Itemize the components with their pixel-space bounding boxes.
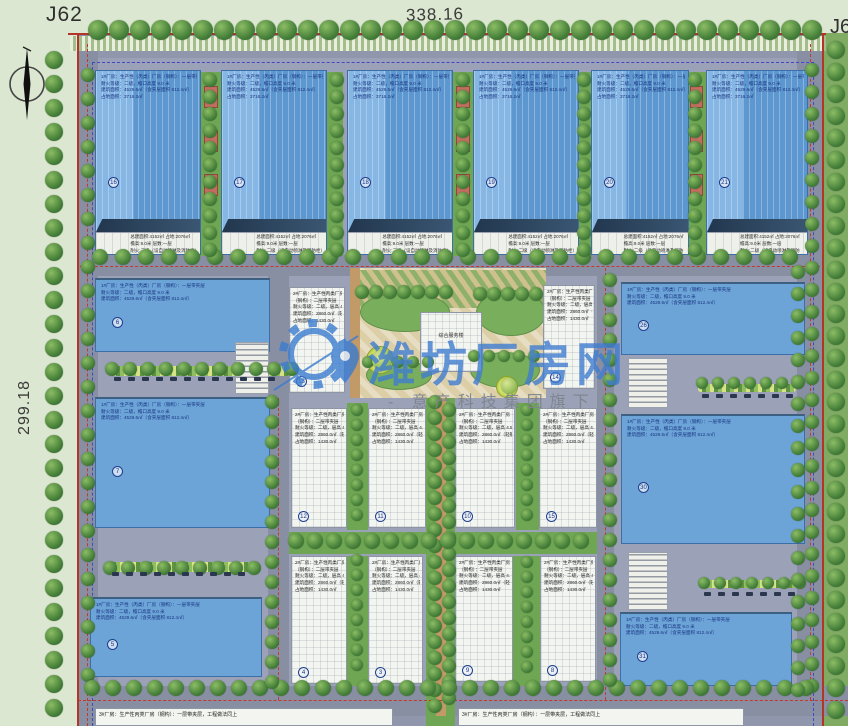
annotation-line: 占地面积：3716.2㎡ bbox=[712, 94, 804, 101]
tree bbox=[203, 124, 217, 138]
building-number-badge: 15 bbox=[546, 511, 557, 522]
tree bbox=[357, 680, 373, 696]
tree bbox=[696, 377, 708, 389]
tree bbox=[805, 415, 819, 429]
tree bbox=[88, 20, 108, 40]
tree bbox=[428, 475, 442, 489]
tree bbox=[421, 533, 437, 549]
tree bbox=[265, 555, 279, 569]
tree bbox=[428, 411, 442, 425]
building-31: 1#厂房：生产性（丙类）厂房（钢构）：一层带夹层耐火等级：二级，檐口高度 9.0… bbox=[620, 612, 792, 686]
tree bbox=[713, 249, 729, 265]
tree bbox=[172, 20, 192, 40]
tree bbox=[265, 475, 279, 489]
tree bbox=[592, 20, 612, 40]
parked-car bbox=[744, 394, 751, 398]
tree bbox=[442, 499, 456, 513]
tree bbox=[392, 356, 404, 368]
tree bbox=[521, 494, 533, 506]
annotation-line: 1#厂房：生产性（丙类）厂房（钢构）：一层带夹层 bbox=[597, 74, 685, 81]
building-annotation: 2#厂房：生产性丙类厂房（砼框架）（钢构）：二层带夹层耐火等级：二级，层高 4.… bbox=[372, 412, 423, 445]
tree bbox=[791, 551, 805, 565]
building-number-badge: 9 bbox=[462, 665, 473, 676]
building-7: 1#厂房：生产性（丙类）厂房（钢构）：一层带夹层耐火等级：二级，檐口高度 9.0… bbox=[95, 397, 270, 528]
tree bbox=[776, 377, 788, 389]
tree bbox=[528, 350, 540, 362]
annotation-line: 占地面积：1430.0㎡ bbox=[459, 587, 510, 594]
tree bbox=[351, 644, 363, 656]
tree bbox=[428, 491, 442, 505]
parked-car bbox=[746, 592, 753, 596]
tree bbox=[81, 380, 95, 394]
service-building-label: 综合服务楼 bbox=[420, 332, 482, 339]
tree bbox=[81, 404, 95, 418]
building-number-badge: 10 bbox=[462, 511, 473, 522]
parked-car bbox=[772, 394, 779, 398]
tree bbox=[651, 680, 667, 696]
tree bbox=[827, 107, 845, 125]
tree bbox=[529, 287, 543, 301]
tree bbox=[521, 586, 533, 598]
parked-car bbox=[210, 572, 217, 576]
annotation-line: 建筑面积：4529.6㎡（含夹层面积 812.4㎡） bbox=[626, 630, 788, 637]
tree bbox=[298, 20, 318, 40]
tree bbox=[791, 287, 805, 301]
parked-car bbox=[226, 377, 233, 381]
annotation-line: 建筑面积：4529.6㎡（含夹层面积 812.4㎡） bbox=[101, 296, 266, 303]
tree bbox=[437, 249, 453, 265]
tree bbox=[827, 679, 845, 697]
tree bbox=[791, 353, 805, 367]
tree bbox=[81, 284, 95, 298]
annotation-line: 2#厂房：生产性丙类厂房（砼框架） bbox=[372, 560, 420, 567]
boundary-red-line bbox=[822, 33, 824, 726]
tree bbox=[487, 20, 507, 40]
tree bbox=[277, 20, 297, 40]
tree bbox=[655, 20, 675, 40]
annotation-line: 2#厂房：生产性丙类厂房（砼框架） bbox=[543, 412, 594, 419]
tree bbox=[603, 353, 617, 367]
top-dimension-label: 338.16 bbox=[406, 4, 465, 26]
tree bbox=[109, 20, 129, 40]
annotation-line: 1#厂房：生产性（丙类）厂房（钢构）：一层带夹层 bbox=[353, 74, 449, 81]
tree bbox=[603, 653, 617, 667]
tree bbox=[805, 591, 819, 605]
building-annotation: 1#厂房：生产性（丙类）厂房（钢构）：一层带夹层耐火等级：二级，檐口高度 9.0… bbox=[626, 617, 788, 637]
tree bbox=[351, 569, 363, 581]
tree bbox=[456, 107, 470, 121]
annotation-line: 建筑面积：4529.6㎡（含夹层面积 812.4㎡） bbox=[627, 300, 801, 307]
tree bbox=[521, 479, 533, 491]
tree bbox=[603, 673, 617, 687]
tree bbox=[577, 175, 591, 189]
building-number-badge: 3 bbox=[375, 667, 386, 678]
tree bbox=[369, 285, 383, 299]
parked-car bbox=[786, 394, 793, 398]
parked-car bbox=[140, 572, 147, 576]
tree bbox=[603, 433, 617, 447]
tree bbox=[791, 661, 805, 675]
tree bbox=[760, 20, 780, 40]
building-annotation: 1#厂房：生产性（丙类）厂房（钢构）：一层带夹层耐火等级：二级，檐口高度 9.0… bbox=[597, 74, 685, 101]
annotation-line: 2#厂房：生产性丙类厂房（砼框架） bbox=[295, 412, 344, 419]
tree bbox=[351, 599, 363, 611]
tree bbox=[420, 680, 436, 696]
annotation-line: 2#厂房：生产性丙类厂房（砼框架） bbox=[547, 289, 592, 296]
building-annotation: 2#厂房：生产性丙类厂房（砼框架）（钢构）：二层带夹层耐火等级：二级，层高 4.… bbox=[543, 412, 594, 445]
tree bbox=[330, 73, 344, 87]
tree bbox=[456, 141, 470, 155]
site-plan-image: 1#厂房：生产性（丙类）厂房（钢构）：一层带夹层耐火等级：二级，檐口高度 9.0… bbox=[0, 0, 848, 726]
tree bbox=[483, 249, 499, 265]
tree bbox=[351, 554, 363, 566]
tree bbox=[456, 192, 470, 206]
annotation-line: 建筑面积：2860.0㎡（轻钢屋面彩钢板） bbox=[372, 580, 420, 587]
building-3: 2#厂房：生产性丙类厂房（砼框架）（钢构）：二层带夹层耐火等级：二级，层高 4.… bbox=[368, 556, 423, 684]
annotation-line: 1#厂房：生产性（丙类）厂房（钢构）：一层带夹层 bbox=[101, 402, 266, 409]
tree bbox=[577, 209, 591, 223]
corner-label-j62: J62 bbox=[46, 3, 83, 27]
tree bbox=[603, 593, 617, 607]
tree bbox=[326, 533, 342, 549]
annotation-line: 建筑面积：4529.6㎡（含夹层面积 812.4㎡） bbox=[712, 87, 804, 94]
tree bbox=[521, 419, 533, 431]
tree bbox=[736, 249, 752, 265]
building-annotation: 2#厂房：生产性丙类厂房（砼框架）（钢构）：二层带夹层耐火等级：二级，层高 4.… bbox=[372, 560, 420, 593]
building-number-badge: 11 bbox=[375, 511, 386, 522]
tree bbox=[516, 533, 532, 549]
tree bbox=[621, 249, 637, 265]
tree bbox=[782, 249, 798, 265]
tree bbox=[746, 577, 758, 589]
tree bbox=[81, 500, 95, 514]
parked-car bbox=[128, 377, 135, 381]
tree bbox=[45, 555, 63, 573]
annotation-line: 建筑面积：2860.0㎡（轻钢屋面彩钢板） bbox=[295, 580, 344, 587]
tree bbox=[521, 646, 533, 658]
tree bbox=[735, 680, 751, 696]
building-16: 1#厂房：生产性（丙类）厂房（钢构）：一层带夹层耐火等级：二级，檐口高度 9.0… bbox=[95, 70, 201, 255]
tree bbox=[203, 73, 217, 87]
building-number-badge: 18 bbox=[360, 177, 371, 188]
tree bbox=[45, 243, 63, 261]
tree bbox=[231, 680, 247, 696]
tree bbox=[428, 427, 442, 441]
band-line: 总建面积:4152㎡ 占地:2076㎡ bbox=[624, 234, 686, 241]
tree bbox=[805, 107, 819, 121]
tree bbox=[521, 556, 533, 568]
building-annotation: 2#厂房：生产性丙类厂房（砼框架）（钢构）：二层带夹层耐火等级：二级，层高 4.… bbox=[544, 560, 593, 593]
tree bbox=[827, 195, 845, 213]
tree bbox=[428, 571, 442, 585]
tree bbox=[791, 309, 805, 323]
tree bbox=[827, 173, 845, 191]
annotation-line: 建筑面积：2860.0㎡（轻钢屋面彩钢板） bbox=[544, 580, 593, 587]
tree bbox=[428, 619, 442, 633]
tree bbox=[577, 243, 591, 257]
tree bbox=[521, 616, 533, 628]
building-annotation: 1#厂房：生产性（丙类）厂房（钢构）：一层带夹层耐火等级：二级，檐口高度 9.0… bbox=[101, 402, 266, 422]
tree bbox=[603, 293, 617, 307]
tree bbox=[827, 261, 845, 279]
tree bbox=[203, 141, 217, 155]
tree bbox=[506, 249, 522, 265]
tree bbox=[598, 249, 614, 265]
tree bbox=[603, 313, 617, 327]
building-number-badge: 17 bbox=[234, 177, 245, 188]
tree bbox=[130, 20, 150, 40]
band-line: 总建面积:4152㎡ 占地:2076㎡ bbox=[130, 234, 198, 241]
tree bbox=[265, 535, 279, 549]
band-line: 檐高:9.0米 层数:一层 bbox=[624, 241, 686, 248]
tree bbox=[688, 175, 702, 189]
tree bbox=[428, 667, 442, 681]
tree bbox=[805, 239, 819, 253]
annotation-line: 占地面积：1430.0㎡ bbox=[547, 316, 592, 323]
tree bbox=[550, 20, 570, 40]
tree bbox=[330, 158, 344, 172]
tree bbox=[307, 533, 323, 549]
parked-car bbox=[198, 377, 205, 381]
building-annotation: 1#厂房：生产性（丙类）厂房（钢构）：一层带夹层耐火等级：二级，檐口高度 9.0… bbox=[627, 419, 801, 439]
tree bbox=[203, 226, 217, 240]
annotation-line: 建筑面积：4529.6㎡（含夹层面积 812.4㎡） bbox=[627, 432, 801, 439]
tree bbox=[123, 362, 137, 376]
tree bbox=[697, 20, 717, 40]
tree bbox=[456, 90, 470, 104]
annotation-line: 占地面积：1430.0㎡ bbox=[372, 587, 420, 594]
tree bbox=[330, 226, 344, 240]
tree bbox=[45, 315, 63, 333]
tree bbox=[81, 620, 95, 634]
tree bbox=[805, 547, 819, 561]
parked-car bbox=[704, 592, 711, 596]
boundary-red-line bbox=[77, 33, 79, 726]
tree bbox=[603, 573, 617, 587]
tree bbox=[265, 595, 279, 609]
tree bbox=[805, 393, 819, 407]
tree bbox=[791, 595, 805, 609]
annotation-line: 耐火等级：二级，层高 4.5 米 bbox=[295, 425, 344, 432]
parked-car bbox=[156, 377, 163, 381]
tree bbox=[351, 404, 363, 416]
tree bbox=[422, 356, 434, 368]
tree bbox=[407, 356, 419, 368]
tree bbox=[456, 175, 470, 189]
building-number-badge: 26 bbox=[638, 320, 649, 331]
tree bbox=[462, 680, 478, 696]
annotation-line: 建筑面积：2860.0㎡（轻钢屋面彩钢板） bbox=[293, 311, 342, 318]
tree bbox=[630, 680, 646, 696]
tree bbox=[425, 285, 439, 299]
tree bbox=[351, 629, 363, 641]
tree bbox=[603, 513, 617, 527]
tree bbox=[92, 249, 108, 265]
annotation-line: 耐火等级：二级，层高 4.5 米 bbox=[459, 425, 512, 432]
tree bbox=[805, 173, 819, 187]
tree bbox=[552, 249, 568, 265]
annotation-line: 占地面积：1430.0㎡ bbox=[295, 439, 344, 446]
tree bbox=[791, 639, 805, 653]
tree bbox=[778, 577, 790, 589]
parked-car bbox=[114, 377, 121, 381]
tree bbox=[378, 680, 394, 696]
tree bbox=[81, 428, 95, 442]
tree bbox=[456, 209, 470, 223]
tree bbox=[688, 90, 702, 104]
building-10: 2#厂房：生产性丙类厂房（砼框架）（钢构）：二层带夹层耐火等级：二级，层高 4.… bbox=[455, 408, 515, 528]
tree bbox=[714, 577, 726, 589]
tree bbox=[712, 377, 724, 389]
tree bbox=[231, 362, 245, 376]
parked-car bbox=[168, 572, 175, 576]
tree bbox=[265, 415, 279, 429]
building-8: 2#厂房：生产性丙类厂房（砼框架）（钢构）：二层带夹层耐火等级：二级，层高 4.… bbox=[540, 556, 596, 682]
building-tan bbox=[670, 356, 686, 404]
tree bbox=[81, 572, 95, 586]
building-annotation: 1#厂房：生产性（丙类）厂房（钢构）：一层带夹层耐火等级：二级，檐口高度 9.0… bbox=[712, 74, 804, 101]
parked-car bbox=[268, 377, 275, 381]
tree bbox=[442, 563, 456, 577]
tree bbox=[497, 533, 513, 549]
tree bbox=[428, 651, 442, 665]
tree bbox=[442, 643, 456, 657]
building-18: 1#厂房：生产性（丙类）厂房（钢构）：一层带夹层耐火等级：二级，檐口高度 9.0… bbox=[347, 70, 453, 255]
tree bbox=[81, 524, 95, 538]
tree bbox=[805, 349, 819, 363]
tree bbox=[603, 493, 617, 507]
tree bbox=[529, 249, 545, 265]
tree bbox=[805, 195, 819, 209]
building-number-badge: 30 bbox=[638, 482, 649, 493]
annotation-line: 耐火等级：二级，层高 4.5 米 bbox=[295, 573, 344, 580]
tree bbox=[588, 680, 604, 696]
tree bbox=[442, 483, 456, 497]
tree bbox=[577, 73, 591, 87]
annotation-line: 建筑面积：2860.0㎡（轻钢屋面彩钢板） bbox=[372, 432, 423, 439]
tree bbox=[827, 327, 845, 345]
tree bbox=[45, 291, 63, 309]
annotation-line: 占地面积：1430.0㎡ bbox=[295, 587, 344, 594]
tree bbox=[529, 20, 549, 40]
tree bbox=[442, 435, 456, 449]
annotation-line: 建筑面积：4529.6㎡（含夹层面积 812.4㎡） bbox=[353, 87, 449, 94]
tree bbox=[330, 243, 344, 257]
tree bbox=[571, 20, 591, 40]
tree bbox=[805, 613, 819, 627]
building-annotation: 2#厂房：生产性丙类厂房（砼框架）（钢构）：二层带夹层耐火等级：二级，层高 4.… bbox=[295, 560, 344, 593]
annotation-line: 1#厂房：生产性（丙类）厂房（钢构）：一层带夹层 bbox=[227, 74, 323, 81]
building-number-badge: 7 bbox=[112, 466, 123, 477]
tree bbox=[235, 20, 255, 40]
tree bbox=[791, 441, 805, 455]
tree bbox=[151, 20, 171, 40]
tree bbox=[442, 515, 456, 529]
tree bbox=[184, 249, 200, 265]
tree bbox=[603, 413, 617, 427]
tree bbox=[45, 459, 63, 477]
parked-car bbox=[196, 572, 203, 576]
tree bbox=[351, 509, 363, 521]
tree bbox=[791, 463, 805, 477]
annotation-line: 建筑面积：4529.6㎡（含夹层面积 812.4㎡） bbox=[479, 87, 575, 94]
building-aw bbox=[628, 552, 668, 610]
tree bbox=[45, 435, 63, 453]
road-centerline bbox=[78, 700, 848, 701]
tree bbox=[577, 192, 591, 206]
annotation-line: 占地面积：1430.0㎡ bbox=[459, 439, 512, 446]
tree bbox=[676, 20, 696, 40]
tree bbox=[442, 611, 456, 625]
tree bbox=[81, 92, 95, 106]
tree bbox=[45, 507, 63, 525]
tree bbox=[414, 249, 430, 265]
annotation-line: 建筑面积：4529.6㎡（含夹层面积 812.4㎡） bbox=[101, 87, 197, 94]
annotation-line: 占地面积：1430.0㎡ bbox=[544, 587, 593, 594]
tree bbox=[521, 434, 533, 446]
tree bbox=[728, 377, 740, 389]
tree bbox=[521, 631, 533, 643]
tree bbox=[168, 680, 184, 696]
tree bbox=[442, 659, 456, 673]
tree bbox=[81, 332, 95, 346]
tree bbox=[805, 63, 819, 77]
tree bbox=[340, 20, 360, 40]
tree bbox=[391, 249, 407, 265]
building-annotation: 2#厂房：生产性丙类厂房（砼框架）（钢构）：二层带夹层耐火等级：二级，层高 4.… bbox=[459, 412, 512, 445]
annotation-line: 占地面积：3716.2㎡ bbox=[479, 94, 575, 101]
building-number-badge: 16 bbox=[108, 177, 119, 188]
tree bbox=[428, 635, 442, 649]
tree bbox=[456, 243, 470, 257]
annotation-line: 占地面积：1430.0㎡ bbox=[293, 318, 342, 325]
tree bbox=[827, 305, 845, 323]
tree bbox=[345, 249, 361, 265]
tree bbox=[718, 20, 738, 40]
tree bbox=[521, 601, 533, 613]
tree bbox=[513, 350, 525, 362]
tree bbox=[442, 579, 456, 593]
tree bbox=[634, 20, 654, 40]
tree bbox=[249, 362, 263, 376]
tree bbox=[805, 327, 819, 341]
tree bbox=[603, 453, 617, 467]
tree bbox=[330, 141, 344, 155]
parked-car bbox=[730, 394, 737, 398]
parked-car bbox=[182, 572, 189, 576]
tree bbox=[193, 20, 213, 40]
tree bbox=[791, 507, 805, 521]
tree bbox=[428, 555, 442, 569]
tree bbox=[45, 339, 63, 357]
tree bbox=[45, 651, 63, 669]
tree bbox=[827, 217, 845, 235]
annotation-line: 建筑面积：2860.0㎡（轻钢屋面彩钢板） bbox=[459, 432, 512, 439]
tree bbox=[428, 395, 442, 409]
band-line: 总建面积:4152㎡ 占地:2076㎡ bbox=[740, 234, 805, 241]
tree bbox=[361, 20, 381, 40]
building-4: 2#厂房：生产性丙类厂房（砼框架）（钢构）：二层带夹层耐火等级：二级，层高 4.… bbox=[291, 556, 347, 684]
roof-ridge bbox=[592, 219, 688, 232]
tree bbox=[428, 603, 442, 617]
tree bbox=[827, 635, 845, 653]
tree bbox=[573, 533, 589, 549]
left-dimension-label: 299.18 bbox=[16, 380, 34, 435]
building-number-badge: 19 bbox=[486, 177, 497, 188]
tree bbox=[762, 577, 774, 589]
tree bbox=[368, 249, 384, 265]
annotation-line: 2#厂房：生产性丙类厂房（砼框架） bbox=[544, 560, 593, 567]
